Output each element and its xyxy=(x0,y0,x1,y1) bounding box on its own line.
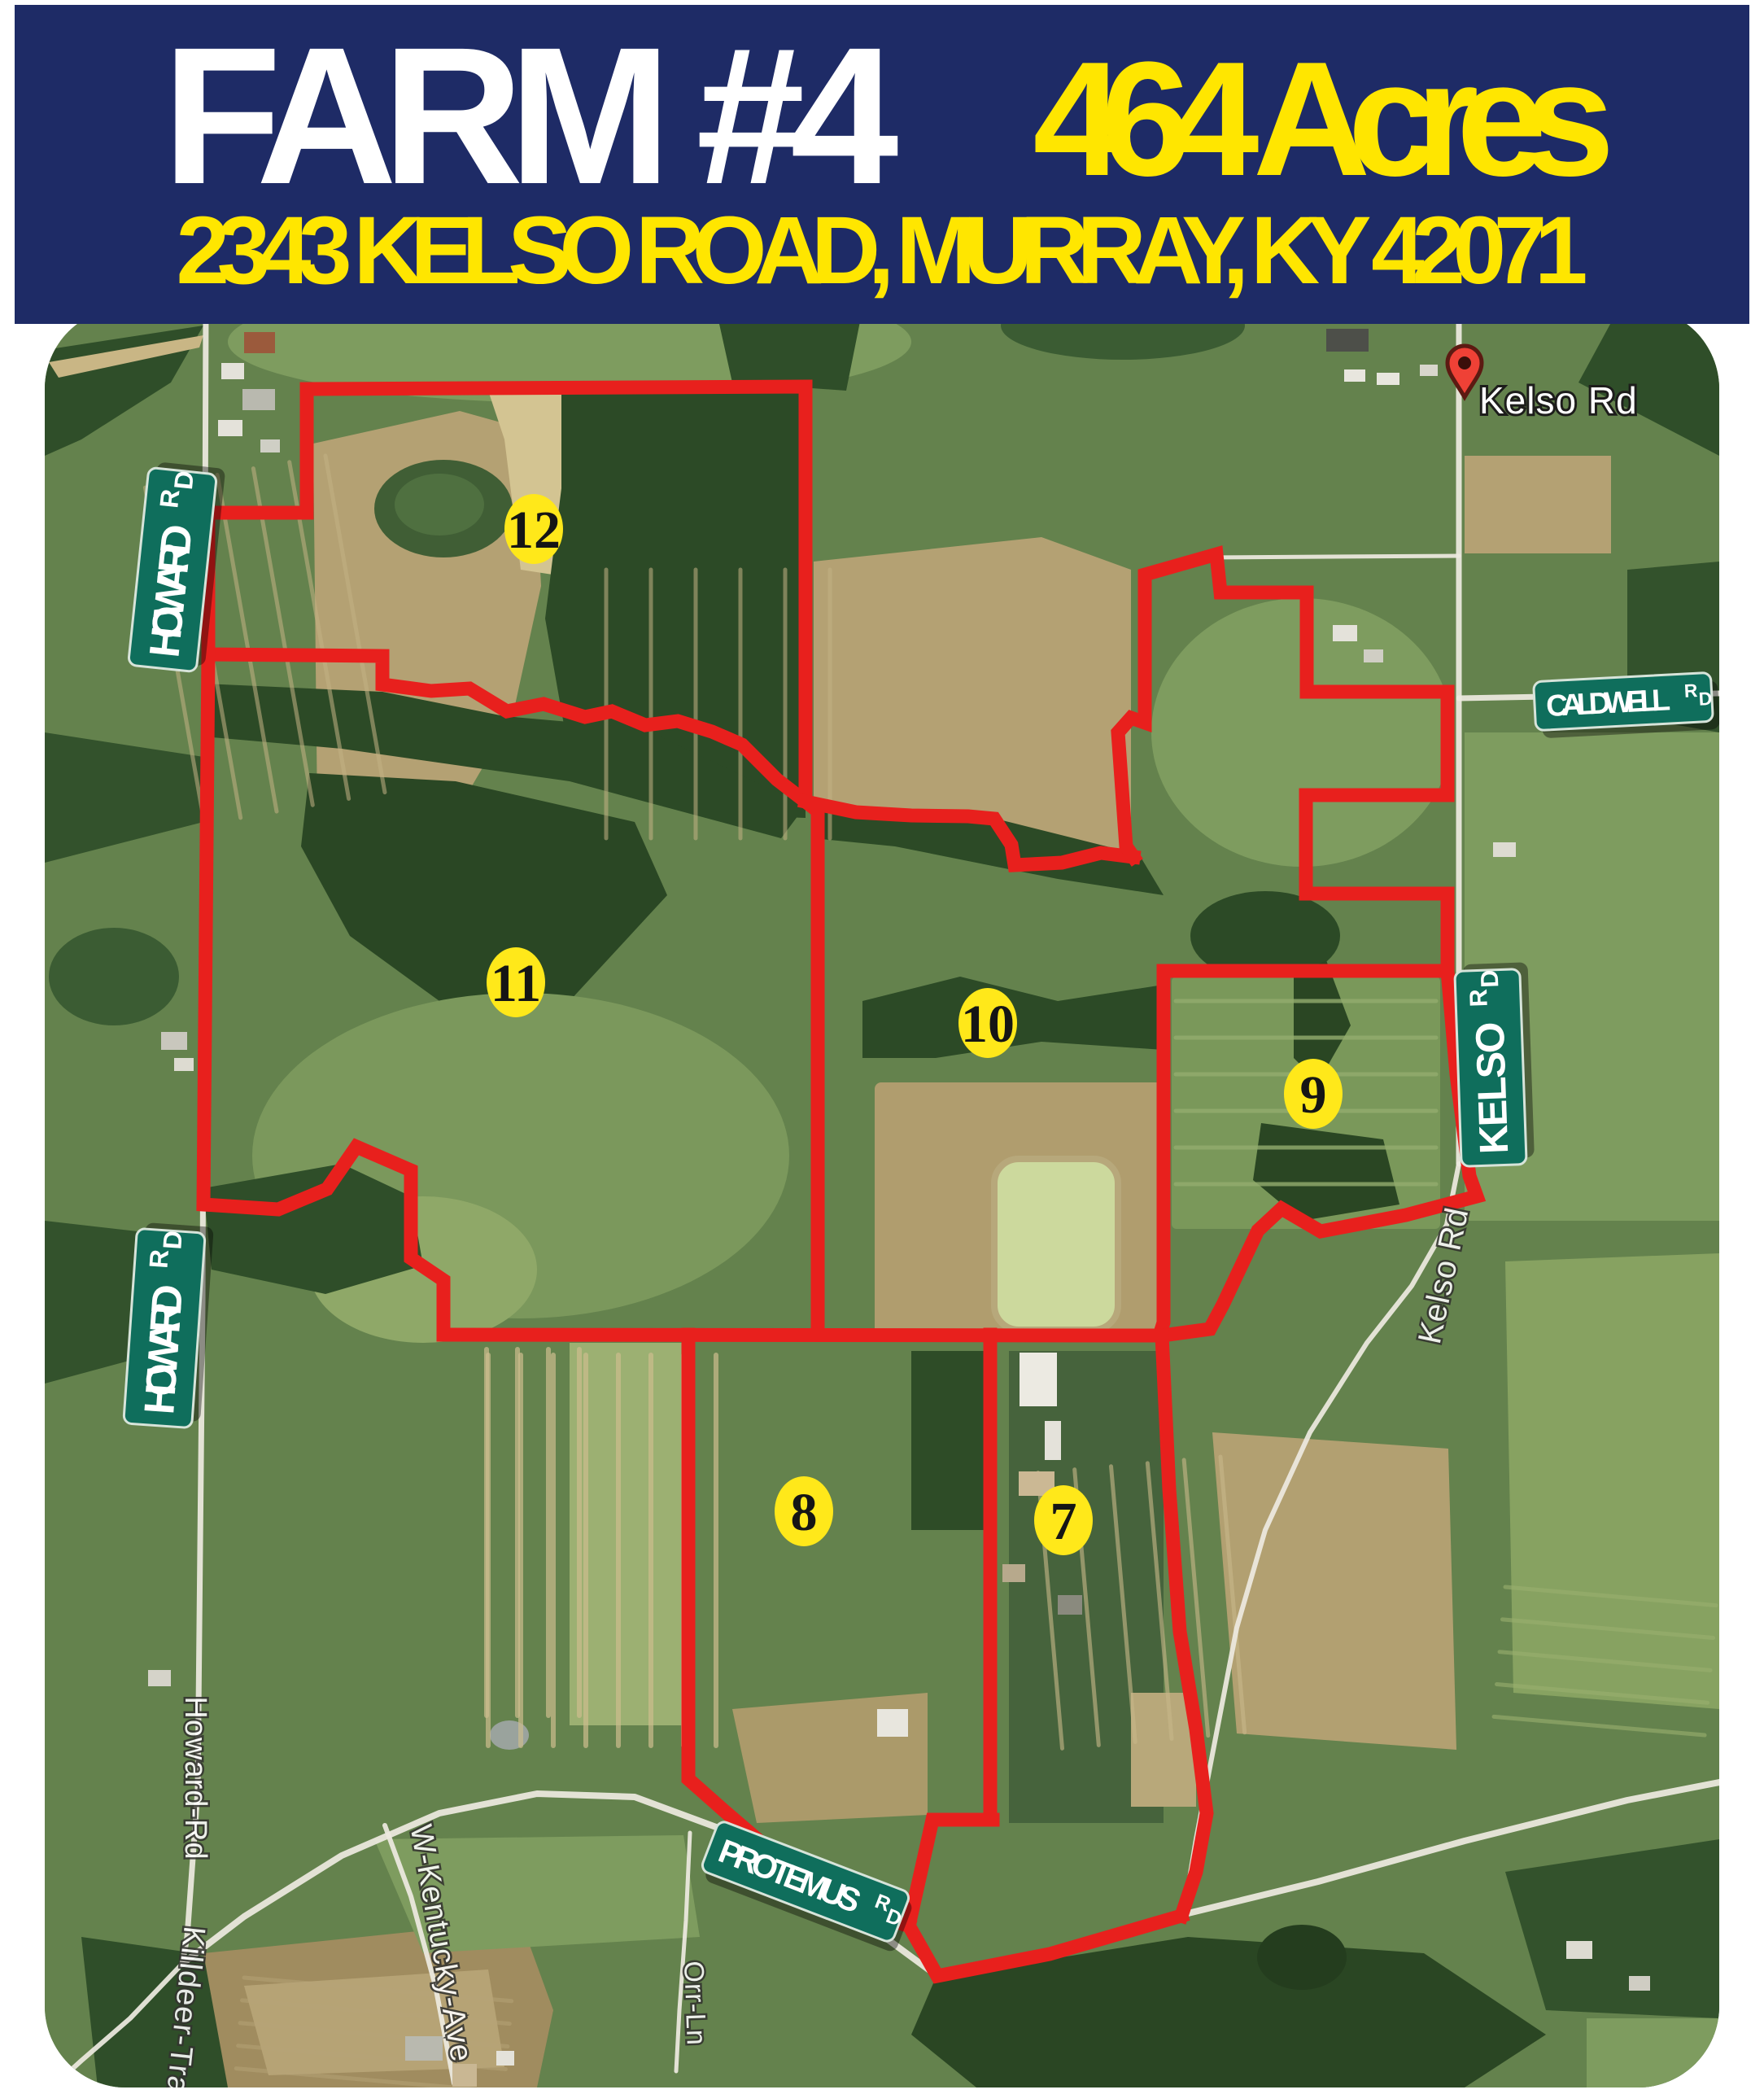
tract-marker-12: 12 xyxy=(504,494,563,564)
building xyxy=(161,1032,187,1050)
building xyxy=(244,332,275,353)
svg-text:11: 11 xyxy=(491,954,541,1013)
building xyxy=(1420,365,1438,376)
building xyxy=(1364,649,1383,662)
building xyxy=(221,363,244,379)
boundary-mid-horizontal xyxy=(443,1335,1159,1336)
svg-text:D: D xyxy=(1476,969,1504,988)
street-sign-kelso-rd-east: KELSORD xyxy=(1455,962,1535,1166)
svg-text:D: D xyxy=(1698,688,1713,710)
svg-text:7: 7 xyxy=(1050,1492,1077,1551)
map-canvas: Kelso RdKelso RdHoward-RdKilldeer-TrailW… xyxy=(45,308,1719,2087)
building xyxy=(1493,842,1516,857)
tract-marker-8: 8 xyxy=(775,1476,833,1546)
svg-text:R: R xyxy=(154,487,185,509)
building xyxy=(1566,1941,1592,1959)
svg-text:8: 8 xyxy=(791,1483,818,1542)
tract-marker-7: 7 xyxy=(1034,1485,1093,1555)
svg-text:KELSO: KELSO xyxy=(1467,1021,1517,1155)
tract-marker-10: 10 xyxy=(958,988,1017,1058)
street-sign-caldwell-rd: CALDWELLRD xyxy=(1534,672,1719,739)
building xyxy=(242,389,275,410)
farm-flyer-page: Kelso RdKelso RdHoward-RdKilldeer-TrailW… xyxy=(0,0,1764,2094)
acreage-label: 464 Acres xyxy=(1033,28,1615,210)
building xyxy=(1058,1595,1082,1615)
building xyxy=(1326,329,1369,352)
road-label-orr-ln: Orr-Ln xyxy=(678,1961,712,2046)
building xyxy=(148,1670,171,1686)
svg-text:R: R xyxy=(1465,989,1493,1008)
building xyxy=(1333,625,1357,641)
tract-marker-9: 9 xyxy=(1284,1059,1343,1129)
svg-text:10: 10 xyxy=(961,995,1015,1054)
tract-marker-11: 11 xyxy=(487,947,545,1017)
building xyxy=(1377,373,1399,385)
building xyxy=(1629,1976,1650,1991)
svg-text:9: 9 xyxy=(1300,1065,1327,1125)
building xyxy=(1020,1353,1057,1406)
svg-text:R: R xyxy=(1683,680,1698,702)
building xyxy=(496,2051,514,2066)
header-banner: FARM #4 464 Acres 2343 KELSO ROAD, MURRA… xyxy=(15,5,1749,324)
svg-text:D: D xyxy=(157,1230,188,1251)
road-farm-drive xyxy=(1204,556,1459,557)
road-label-howard-rd-faint: Howard-Rd xyxy=(178,1696,212,1860)
building xyxy=(218,420,242,436)
svg-text:D: D xyxy=(168,470,199,492)
building xyxy=(405,2036,443,2061)
satellite-map: Kelso RdKelso RdHoward-RdKilldeer-TrailW… xyxy=(45,308,1719,2087)
building xyxy=(1344,369,1365,382)
svg-text:HOWARD: HOWARD xyxy=(136,1283,192,1416)
svg-text:12: 12 xyxy=(507,501,561,560)
road-label-kelso-rd-pin-label: Kelso Rd xyxy=(1479,379,1638,422)
farm-title: FARM #4 xyxy=(163,7,899,225)
property-address: 2343 KELSO ROAD, MURRAY, KY 42071 xyxy=(177,197,1588,304)
building xyxy=(1045,1421,1061,1460)
svg-text:R: R xyxy=(143,1248,174,1270)
building xyxy=(877,1709,908,1737)
building xyxy=(1002,1564,1025,1582)
building xyxy=(174,1058,194,1071)
building xyxy=(260,439,280,452)
street-sign-howard-rd-south: HOWARDRD xyxy=(124,1222,214,1428)
building xyxy=(452,2064,477,2087)
svg-text:CALDWELL: CALDWELL xyxy=(1545,682,1671,723)
boundary-tract-9-west xyxy=(1159,971,1164,1336)
